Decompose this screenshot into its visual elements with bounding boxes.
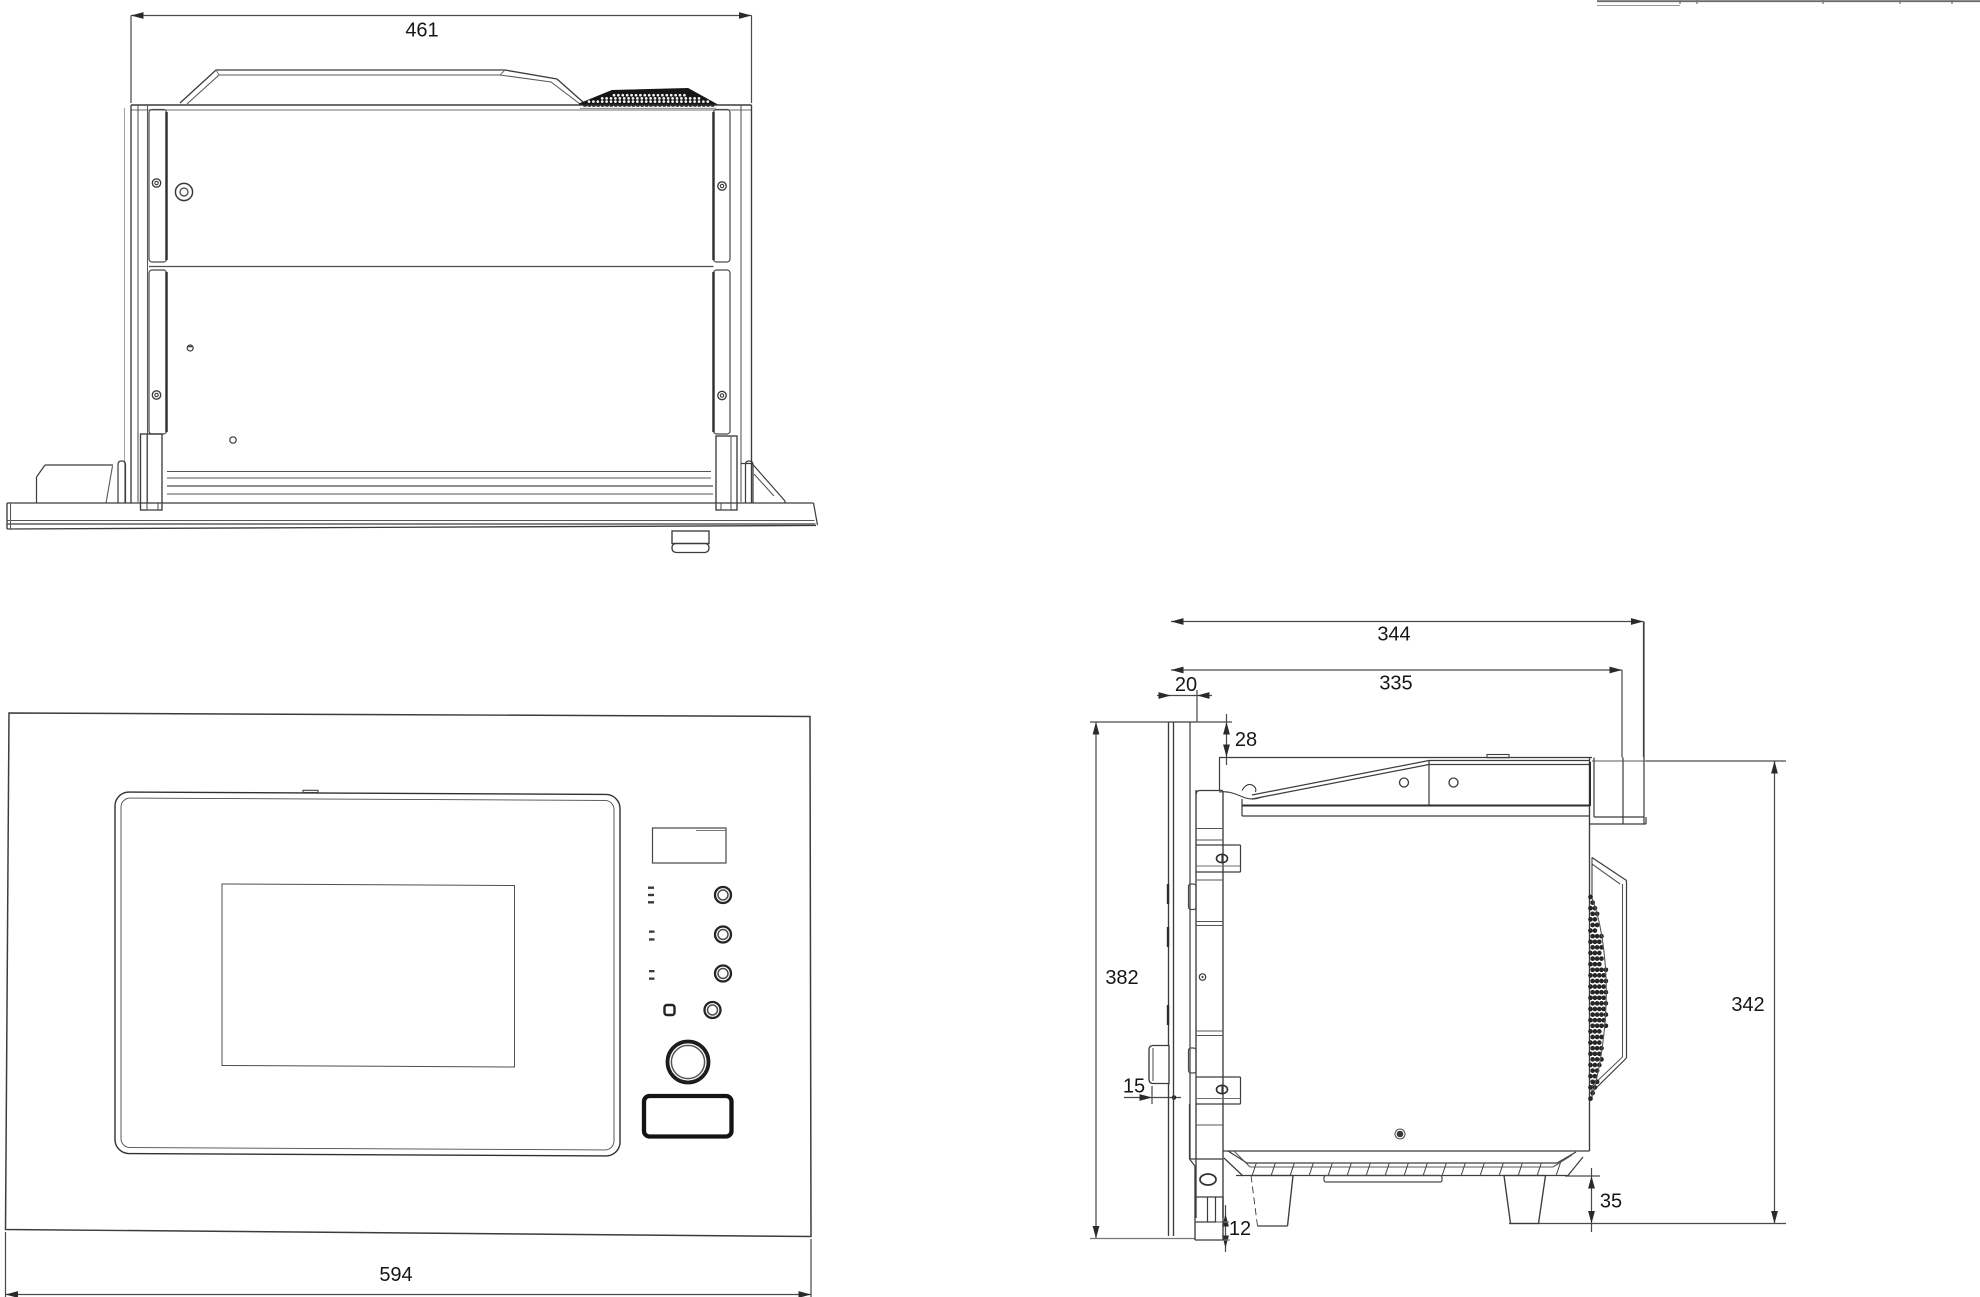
svg-text:335: 335	[1379, 673, 1412, 695]
svg-text:12: 12	[1229, 1218, 1251, 1240]
svg-text:35: 35	[1600, 1191, 1622, 1213]
svg-text:28: 28	[1235, 729, 1257, 751]
svg-text:342: 342	[1731, 994, 1764, 1016]
svg-text:15: 15	[1123, 1076, 1145, 1098]
svg-text:20: 20	[1175, 674, 1197, 696]
svg-text:594: 594	[379, 1264, 412, 1286]
svg-text:461: 461	[405, 20, 438, 42]
svg-text:382: 382	[1105, 967, 1138, 989]
svg-text:344: 344	[1377, 624, 1410, 646]
